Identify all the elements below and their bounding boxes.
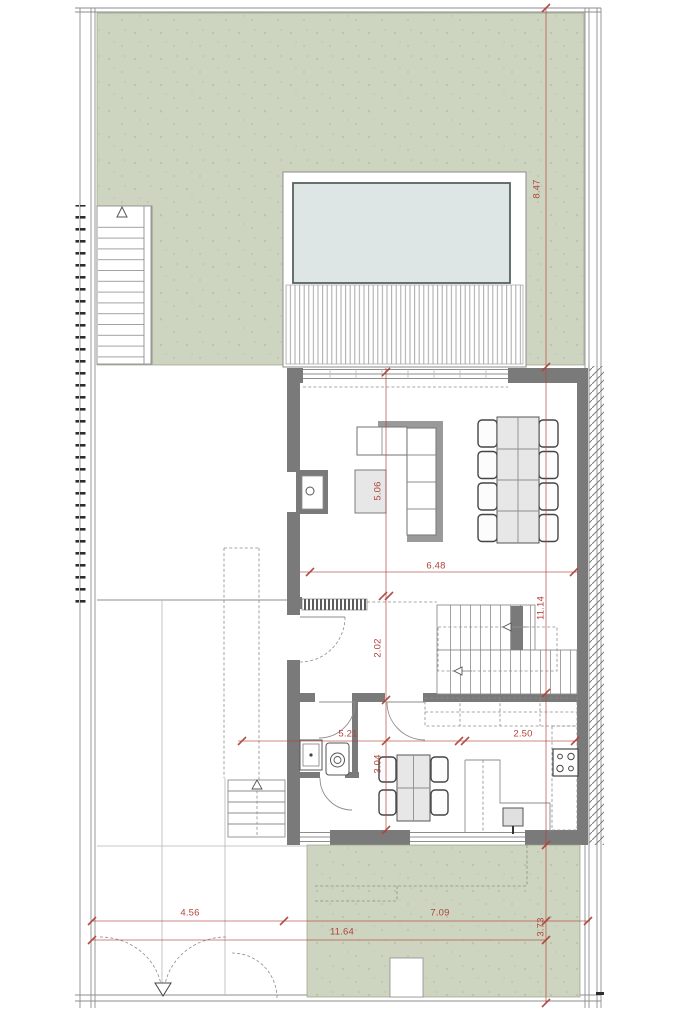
toilet <box>326 743 349 775</box>
dim-label-kitchen-left-width: 5.21 <box>338 729 357 740</box>
kitchen-chair <box>431 757 448 782</box>
fireplace <box>296 470 328 514</box>
swimming-pool <box>293 183 510 283</box>
border-tick-marks <box>76 205 86 603</box>
stove <box>553 749 578 776</box>
pedestrian-gate-arc <box>232 953 277 998</box>
border-corner-mark <box>596 992 604 995</box>
gate-swings <box>100 937 226 996</box>
adjoining-wall-hatch <box>589 366 604 845</box>
dining-chair <box>539 452 558 479</box>
gate-arrow <box>155 983 171 996</box>
floor-plan: 8.47 11.14 3.73 5.06 2.02 3.04 6.48 5.21… <box>0 0 678 1024</box>
exterior-stair-west <box>228 780 285 837</box>
dining-chair <box>539 515 558 542</box>
floor-grille <box>302 599 367 610</box>
dim-label-driveway-width: 4.56 <box>180 908 199 919</box>
dim-label-hall-height: 2.02 <box>373 638 384 657</box>
bathroom-sink <box>300 740 322 770</box>
dim-label-site-right-upper: 8.47 <box>532 179 543 198</box>
exterior-stair-northwest <box>97 206 152 364</box>
dining-chair <box>478 452 497 479</box>
dim-label-living-height: 5.06 <box>373 481 384 500</box>
dim-label-living-width: 6.48 <box>426 561 445 572</box>
dining-chair <box>478 420 497 447</box>
garden-cutout <box>390 958 423 997</box>
dining-chair <box>539 483 558 510</box>
dim-label-garden-bottom-right: 3.73 <box>536 917 547 936</box>
floor-plan-drawing <box>0 0 678 1024</box>
dim-label-kitchen-height: 3.04 <box>373 754 384 773</box>
dim-label-kitchen-right-width: 2.50 <box>513 729 532 740</box>
driveway <box>97 548 307 998</box>
dim-label-house-right: 11.14 <box>536 596 547 620</box>
kitchen-chair <box>379 790 396 815</box>
kitchen-chair <box>431 790 448 815</box>
pool-terrace <box>283 172 526 367</box>
wooden-deck <box>286 285 523 364</box>
dim-label-garden-bottom-width: 7.09 <box>430 908 449 919</box>
dining-chair <box>539 420 558 447</box>
dining-chair <box>478 515 497 542</box>
dim-label-site-bottom-width: 11.64 <box>330 927 354 938</box>
flue-icon <box>306 487 314 495</box>
dining-chair <box>478 483 497 510</box>
